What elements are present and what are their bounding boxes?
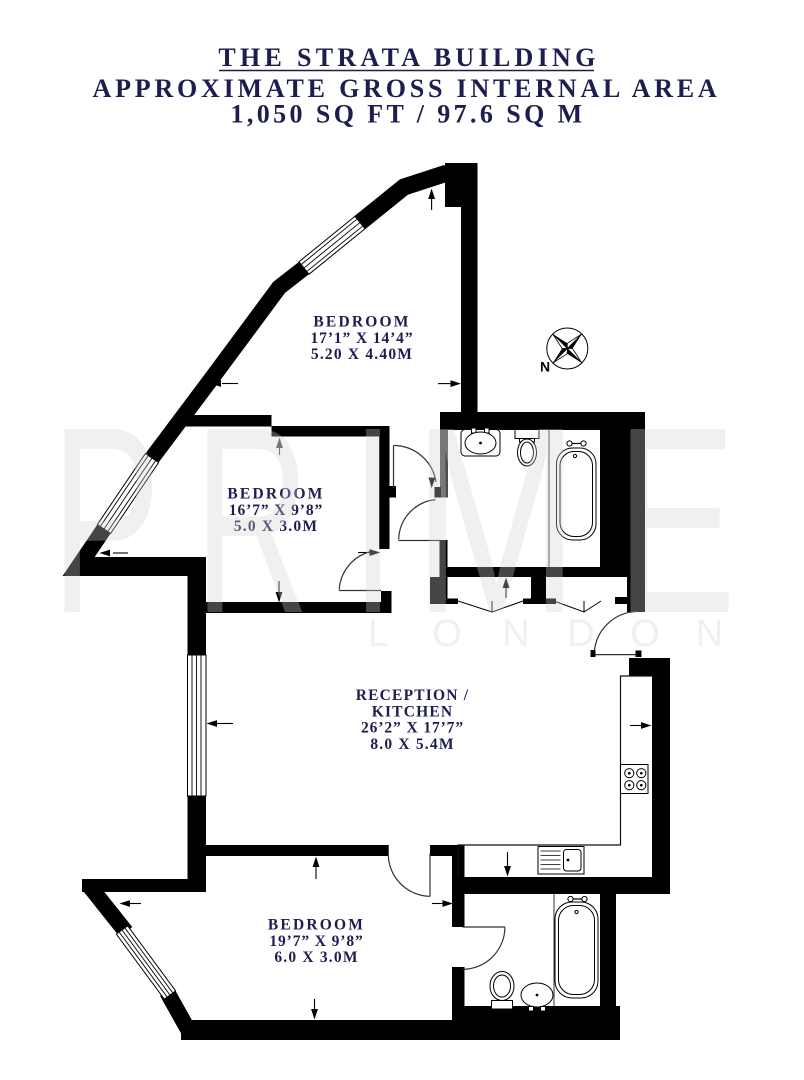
svg-text:KITCHEN: KITCHEN xyxy=(372,703,454,720)
svg-text:N: N xyxy=(502,613,529,655)
svg-text:26’2” X 17’7”: 26’2” X 17’7” xyxy=(361,720,464,737)
svg-text:5.20 X 4.40M: 5.20 X 4.40M xyxy=(311,346,413,363)
svg-text:R: R xyxy=(194,372,309,669)
svg-text:BEDROOM: BEDROOM xyxy=(268,917,365,934)
svg-text:N: N xyxy=(696,613,723,655)
svg-text:O: O xyxy=(630,613,660,655)
svg-text:1,050 SQ FT / 97.6 SQ M: 1,050 SQ FT / 97.6 SQ M xyxy=(230,100,585,129)
svg-text:6.0 X 3.0M: 6.0 X 3.0M xyxy=(274,949,358,966)
svg-text:L: L xyxy=(368,613,389,655)
svg-text:RECEPTION /: RECEPTION / xyxy=(356,687,470,704)
svg-text:D: D xyxy=(567,613,594,655)
svg-text:17’1” X 14’4”: 17’1” X 14’4” xyxy=(311,330,414,347)
svg-text:P: P xyxy=(51,372,161,669)
svg-text:8.0 X 5.4M: 8.0 X 5.4M xyxy=(370,736,454,753)
svg-text:THE STRATA BUILDING: THE STRATA BUILDING xyxy=(218,43,599,72)
svg-text:19’7” X 9’8”: 19’7” X 9’8” xyxy=(269,933,363,950)
svg-text:BEDROOM: BEDROOM xyxy=(313,314,410,331)
svg-text:O: O xyxy=(432,613,462,655)
